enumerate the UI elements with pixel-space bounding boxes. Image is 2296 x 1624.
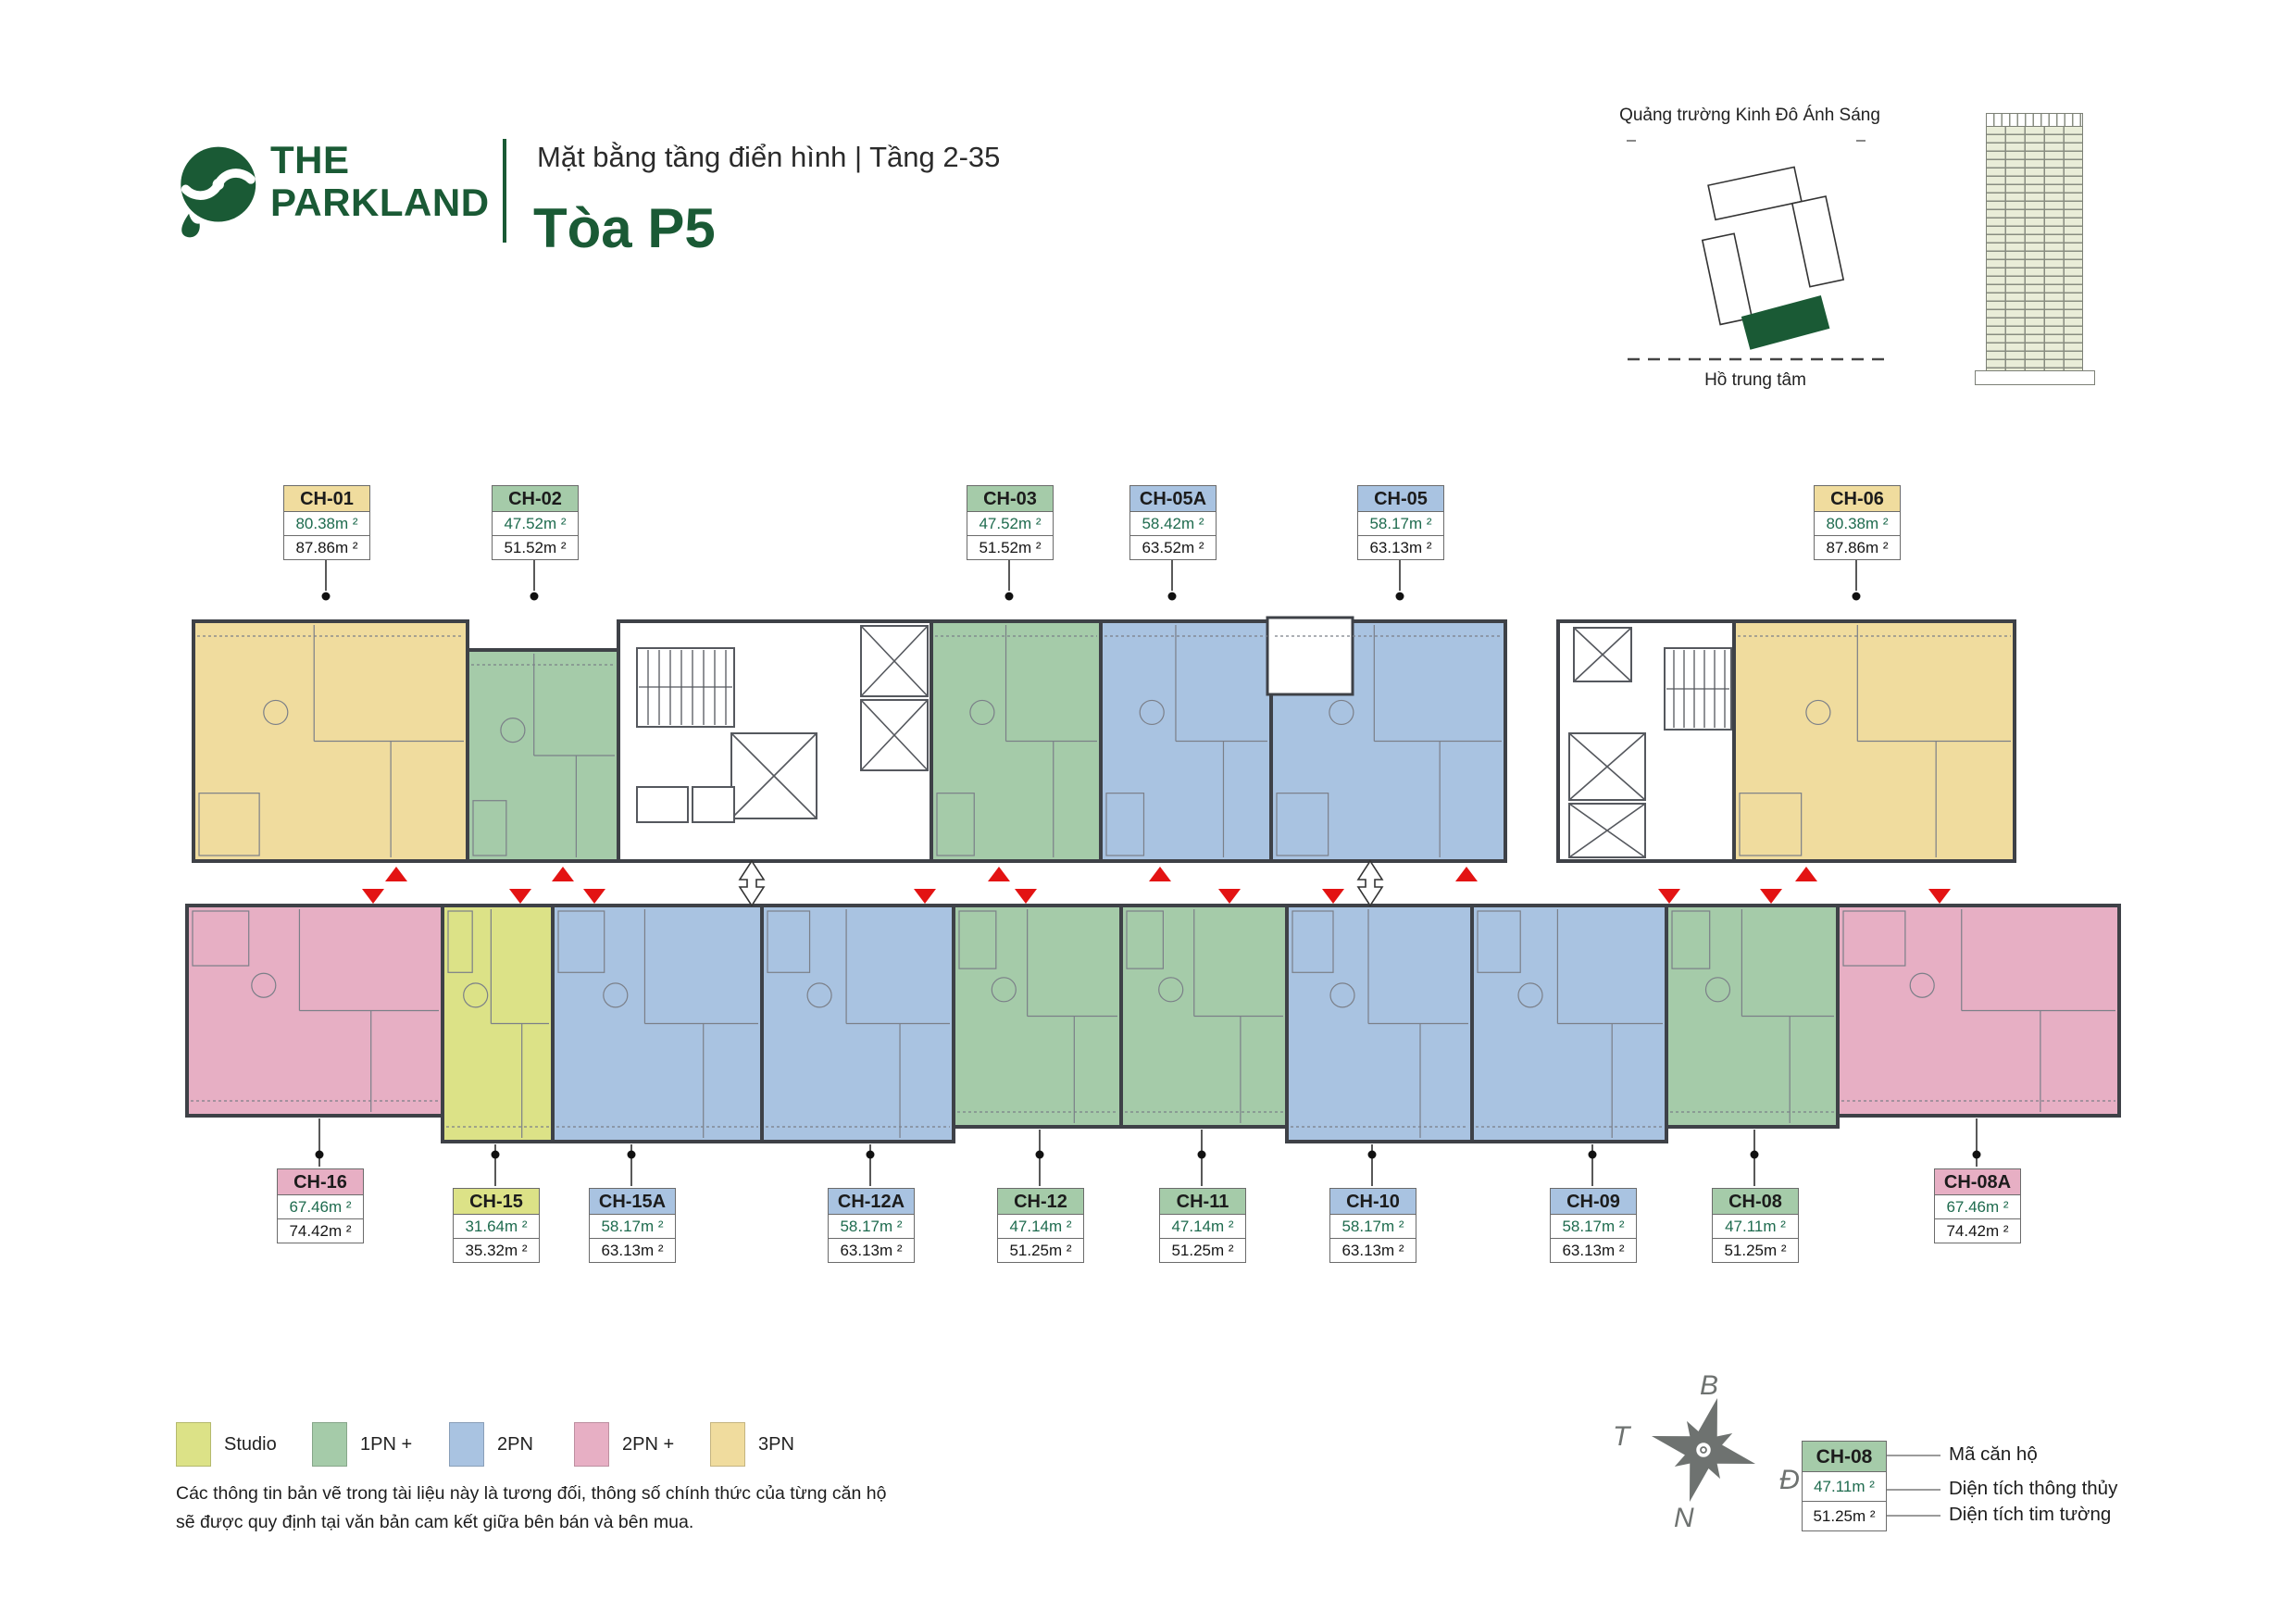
floor-plan xyxy=(0,0,2296,1624)
unit-label-CH-12: CH-12 47.14m ²51.25m ² xyxy=(997,1188,1084,1263)
unit-label-CH-12A: CH-12A 58.17m ²63.13m ² xyxy=(828,1188,915,1263)
unit-label-CH-15: CH-15 31.64m ²35.32m ² xyxy=(453,1188,540,1263)
key-connector-2 xyxy=(1887,1489,1940,1491)
legend-item-1pn: 1PN + xyxy=(312,1422,412,1467)
bottom-row-units xyxy=(187,906,2119,1142)
unit-label-CH-05A: CH-05A 58.42m ²63.52m ² xyxy=(1129,485,1217,560)
key-label-unit-id: Mã căn hộ xyxy=(1949,1443,2038,1466)
legend-item-2pnp: 2PN + xyxy=(574,1422,674,1467)
unit-label-CH-09: CH-09 58.17m ²63.13m ² xyxy=(1550,1188,1637,1263)
service-room xyxy=(637,787,688,822)
compass-south-label: N xyxy=(1674,1503,1694,1534)
key-legend-box: CH-08 47.11m ² 51.25m ² xyxy=(1802,1441,1887,1531)
legend-item-2pn: 2PN xyxy=(449,1422,533,1467)
disclaimer-line1: Các thông tin bản vẽ trong tài liệu này … xyxy=(176,1483,886,1505)
legend-swatch-studio xyxy=(176,1422,211,1467)
unit-label-CH-01: CH-01 80.38m ²87.86m ² xyxy=(283,485,370,560)
unit-label-CH-10: CH-10 58.17m ²63.13m ² xyxy=(1329,1188,1416,1263)
legend-label: Studio xyxy=(224,1434,277,1455)
key-connector-1 xyxy=(1887,1455,1940,1456)
legend-item-studio: Studio xyxy=(176,1422,277,1467)
unit-label-CH-05: CH-05 58.17m ²63.13m ² xyxy=(1357,485,1444,560)
service-room xyxy=(693,787,734,822)
legend-swatch-1pn xyxy=(312,1422,347,1467)
key-label-area1: Diện tích thông thủy xyxy=(1949,1478,2117,1500)
corridor-double-arrows xyxy=(740,861,1382,906)
legend-swatch-3pn xyxy=(710,1422,745,1467)
legend-label: 1PN + xyxy=(360,1434,412,1455)
unit-label-CH-11: CH-11 47.14m ²51.25m ² xyxy=(1159,1188,1246,1263)
compass-west-label: T xyxy=(1613,1421,1629,1453)
unit-label-CH-08: CH-08 47.11m ²51.25m ² xyxy=(1712,1188,1799,1263)
legend-item-3pn: 3PN xyxy=(710,1422,794,1467)
unit-label-CH-06: CH-06 80.38m ²87.86m ² xyxy=(1814,485,1901,560)
unit-label-CH-15A: CH-15A 58.17m ²63.13m ² xyxy=(589,1188,676,1263)
unit-label-CH-08A: CH-08A 67.46m ²74.42m ² xyxy=(1934,1168,2021,1243)
stair-core-2 xyxy=(1558,621,1734,861)
unit-label-CH-03: CH-03 47.52m ²51.52m ² xyxy=(967,485,1054,560)
stair-core-1 xyxy=(618,621,931,861)
unit-label-CH-02: CH-02 47.52m ²51.52m ² xyxy=(492,485,579,560)
key-label-area2: Diện tích tim tường xyxy=(1949,1504,2111,1526)
disclaimer-line2: sẽ được quy định tại văn bản cam kết giữ… xyxy=(176,1512,693,1533)
legend-swatch-2pnp xyxy=(574,1422,609,1467)
entry-arrows-top xyxy=(385,867,1817,881)
compass-north-label: B xyxy=(1700,1370,1718,1402)
legend-swatch-2pn xyxy=(449,1422,484,1467)
top-row-units xyxy=(193,618,2015,861)
legend-label: 3PN xyxy=(758,1434,794,1455)
legend-label: 2PN + xyxy=(622,1434,674,1455)
unit-label-CH-16: CH-16 67.46m ²74.42m ² xyxy=(277,1168,364,1243)
top-row-notch xyxy=(1267,618,1353,694)
entry-arrows-bottom xyxy=(362,889,1951,904)
compass-east-label: Đ xyxy=(1779,1465,1800,1496)
page: THE PARKLAND Mặt bằng tầng điển hình | T… xyxy=(0,0,2296,1624)
key-connector-3 xyxy=(1887,1515,1940,1517)
legend-label: 2PN xyxy=(497,1434,533,1455)
